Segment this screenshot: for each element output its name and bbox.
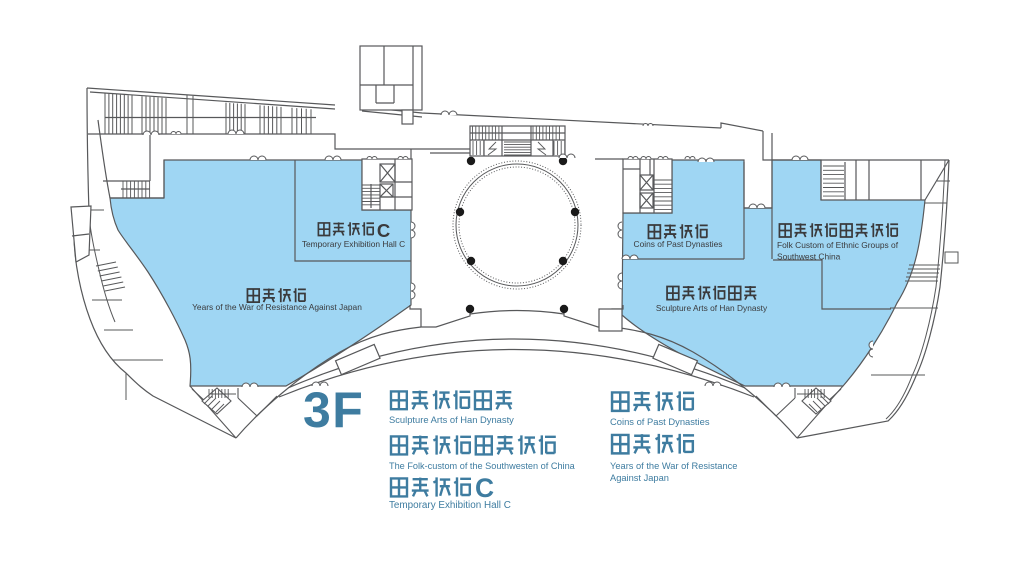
svg-text:Temporary Exhibition Hall C: Temporary Exhibition Hall C	[389, 500, 511, 511]
svg-text:Years of the War of Resistance: Years of the War of Resistance Against J…	[192, 302, 362, 312]
svg-text:Sculpture Arts of Han Dynasty: Sculpture Arts of Han Dynasty	[656, 303, 768, 313]
svg-text:Southwest China: Southwest China	[777, 252, 841, 262]
svg-text:Folk Custom of Ethnic Groups o: Folk Custom of Ethnic Groups of	[777, 240, 899, 250]
svg-text:Coins of Past Dynasties: Coins of Past Dynasties	[610, 416, 710, 427]
svg-text:Years of the War of Resistance: Years of the War of Resistance	[610, 461, 737, 471]
svg-text:Coins of Past Dynasties: Coins of Past Dynasties	[634, 239, 723, 249]
svg-text:Sculpture Arts of Han Dynasty: Sculpture Arts of Han Dynasty	[389, 415, 514, 425]
svg-text:Temporary Exhibition Hall C: Temporary Exhibition Hall C	[302, 239, 405, 249]
svg-text:C: C	[475, 473, 494, 503]
svg-text:The Folk-custom of the Southwe: The Folk-custom of the Southwesten of Ch…	[389, 461, 576, 471]
svg-text:C: C	[377, 220, 390, 241]
svg-text:Against Japan: Against Japan	[610, 473, 669, 483]
svg-text:3F: 3F	[303, 382, 364, 438]
